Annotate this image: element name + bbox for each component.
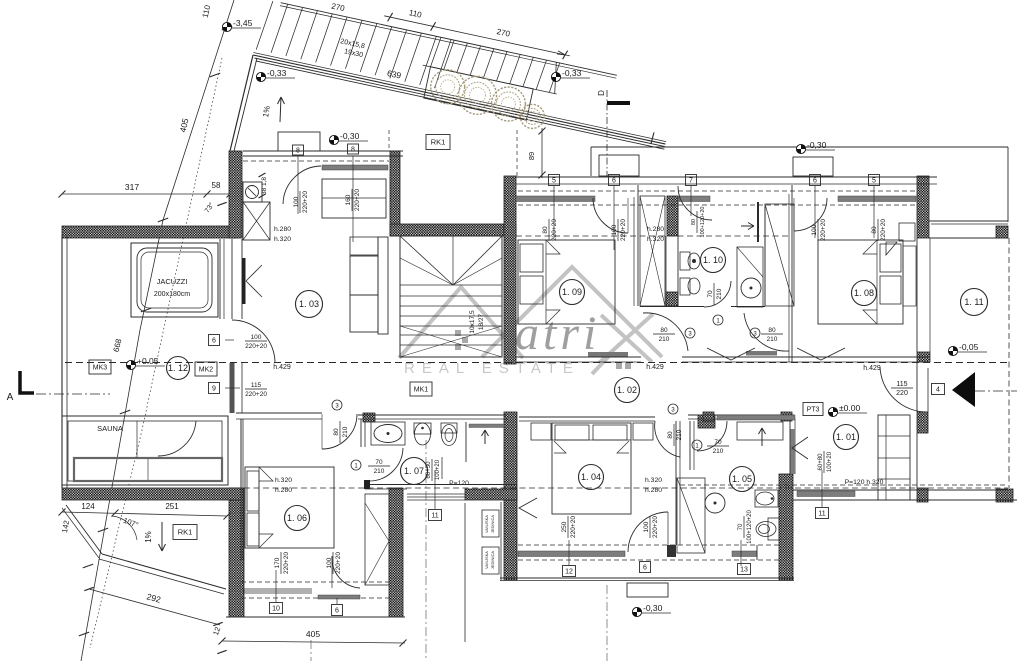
svg-text:100: 100 bbox=[251, 334, 262, 341]
svg-text:18/27: 18/27 bbox=[478, 313, 485, 330]
svg-text:220+20: 220+20 bbox=[652, 516, 659, 538]
svg-text:13: 13 bbox=[740, 567, 748, 574]
svg-text:80: 80 bbox=[691, 219, 697, 225]
svg-text:JEDINICA: JEDINICA bbox=[490, 515, 495, 534]
svg-text:h.320: h.320 bbox=[645, 477, 662, 484]
svg-text:89: 89 bbox=[527, 152, 536, 160]
svg-text:6: 6 bbox=[612, 178, 616, 185]
svg-text:10: 10 bbox=[272, 606, 280, 613]
svg-text:1%: 1% bbox=[144, 531, 153, 543]
svg-text:100: 100 bbox=[643, 521, 650, 532]
svg-text:A: A bbox=[7, 392, 14, 403]
svg-text:100: 100 bbox=[811, 224, 818, 235]
svg-text:220+20: 220+20 bbox=[245, 391, 267, 398]
svg-text:80: 80 bbox=[768, 327, 776, 334]
svg-text:1. 11: 1. 11 bbox=[964, 297, 983, 307]
svg-text:6: 6 bbox=[335, 608, 339, 615]
svg-text:1. 04: 1. 04 bbox=[581, 472, 601, 482]
svg-text:-0,33: -0,33 bbox=[562, 68, 582, 78]
svg-text:80: 80 bbox=[667, 431, 674, 439]
svg-text:317: 317 bbox=[125, 182, 139, 192]
svg-text:210: 210 bbox=[659, 336, 670, 343]
svg-text:6: 6 bbox=[212, 338, 216, 345]
svg-text:220+20: 220+20 bbox=[570, 516, 577, 538]
svg-text:220+20: 220+20 bbox=[880, 219, 887, 241]
svg-text:RK1: RK1 bbox=[431, 138, 446, 147]
svg-text:h.280: h.280 bbox=[275, 487, 292, 494]
svg-text:220+20: 220+20 bbox=[820, 219, 827, 241]
svg-text:RK1: RK1 bbox=[178, 528, 193, 537]
svg-text:-3,45: -3,45 bbox=[233, 18, 253, 28]
svg-text:210: 210 bbox=[713, 448, 724, 455]
svg-text:1. 03: 1. 03 bbox=[299, 299, 319, 309]
svg-text:80: 80 bbox=[660, 327, 668, 334]
svg-text:220+20: 220+20 bbox=[245, 343, 267, 350]
svg-text:1. 12: 1. 12 bbox=[168, 363, 188, 373]
svg-text:210: 210 bbox=[374, 468, 385, 475]
svg-text:-0,30: -0,30 bbox=[807, 140, 827, 150]
svg-text:210: 210 bbox=[342, 426, 349, 437]
svg-text:80: 80 bbox=[871, 226, 878, 234]
svg-text:10x17,5: 10x17,5 bbox=[469, 310, 476, 334]
svg-text:100+120+20: 100+120+20 bbox=[700, 207, 706, 238]
svg-text:±0.00: ±0.00 bbox=[839, 403, 860, 413]
svg-text:SAUNA: SAUNA bbox=[97, 424, 123, 433]
svg-text:80: 80 bbox=[542, 226, 549, 234]
svg-text:60+50: 60+50 bbox=[426, 461, 432, 479]
svg-text:200x180cm: 200x180cm bbox=[154, 291, 190, 298]
svg-text:250: 250 bbox=[561, 521, 568, 532]
svg-text:h.280: h.280 bbox=[647, 226, 664, 233]
svg-text:70: 70 bbox=[375, 459, 383, 466]
svg-text:7: 7 bbox=[689, 178, 693, 185]
svg-text:h.320: h.320 bbox=[275, 477, 292, 484]
svg-text:220+20: 220+20 bbox=[551, 219, 558, 241]
svg-text:115: 115 bbox=[251, 382, 262, 389]
svg-text:h.280: h.280 bbox=[645, 487, 662, 494]
svg-text:VANJSKA: VANJSKA bbox=[484, 515, 489, 533]
svg-text:h.320: h.320 bbox=[647, 236, 664, 243]
svg-text:h.429: h.429 bbox=[646, 364, 664, 371]
svg-text:220+20: 220+20 bbox=[335, 552, 342, 574]
svg-text:MK1: MK1 bbox=[414, 387, 429, 394]
svg-text:JACUZZI: JACUZZI bbox=[157, 277, 188, 286]
svg-text:1. 08: 1. 08 bbox=[854, 288, 874, 298]
svg-text:100+20: 100+20 bbox=[435, 459, 441, 480]
svg-text:210: 210 bbox=[767, 336, 778, 343]
svg-text:1. 09: 1. 09 bbox=[562, 287, 582, 297]
svg-text:h.429: h.429 bbox=[863, 365, 881, 372]
svg-text:8: 8 bbox=[351, 147, 355, 154]
svg-text:115: 115 bbox=[896, 381, 907, 388]
svg-text:5: 5 bbox=[552, 178, 556, 185]
svg-text:1. 10: 1. 10 bbox=[703, 255, 723, 265]
svg-text:220+20: 220+20 bbox=[620, 219, 627, 241]
svg-text:405: 405 bbox=[306, 629, 320, 639]
svg-text:70: 70 bbox=[714, 439, 722, 446]
svg-text:124: 124 bbox=[81, 502, 95, 511]
svg-text:P=120 h.320: P=120 h.320 bbox=[845, 479, 884, 486]
svg-text:h.429: h.429 bbox=[273, 364, 291, 371]
svg-text:D: D bbox=[597, 90, 606, 96]
svg-text:9: 9 bbox=[212, 386, 216, 393]
svg-text:4: 4 bbox=[936, 387, 940, 394]
svg-text:210: 210 bbox=[716, 288, 723, 299]
svg-text:atri: atri bbox=[515, 307, 600, 360]
svg-text:6: 6 bbox=[643, 565, 647, 572]
svg-text:38 1,8: 38 1,8 bbox=[261, 177, 268, 195]
svg-text:220+20: 220+20 bbox=[283, 552, 290, 574]
svg-text:12: 12 bbox=[565, 569, 573, 576]
svg-text:170: 170 bbox=[274, 557, 281, 568]
svg-text:6: 6 bbox=[813, 178, 817, 185]
svg-text:58: 58 bbox=[212, 181, 221, 190]
svg-text:100+20: 100+20 bbox=[827, 451, 833, 472]
svg-text:8: 8 bbox=[296, 148, 300, 155]
svg-text:-0,30: -0,30 bbox=[340, 131, 360, 141]
svg-text:70: 70 bbox=[738, 523, 744, 530]
svg-text:100: 100 bbox=[611, 224, 618, 235]
svg-text:80: 80 bbox=[333, 428, 340, 436]
svg-text:h.320: h.320 bbox=[274, 236, 291, 243]
svg-text:220+20: 220+20 bbox=[354, 189, 361, 211]
svg-text:-0,30: -0,30 bbox=[643, 603, 663, 613]
svg-text:220: 220 bbox=[896, 390, 908, 397]
svg-text:1. 07: 1. 07 bbox=[404, 466, 424, 476]
svg-text:1. 01: 1. 01 bbox=[836, 432, 856, 442]
svg-text:1. 02: 1. 02 bbox=[617, 385, 637, 395]
svg-text:160: 160 bbox=[345, 194, 352, 205]
svg-text:P=120: P=120 bbox=[449, 480, 469, 487]
svg-text:100: 100 bbox=[326, 557, 333, 568]
svg-text:220+20: 220+20 bbox=[302, 191, 309, 213]
svg-text:60+80: 60+80 bbox=[818, 453, 824, 471]
svg-text:70: 70 bbox=[707, 290, 714, 298]
svg-text:-0,05: -0,05 bbox=[959, 342, 979, 352]
svg-text:PT3: PT3 bbox=[807, 407, 820, 414]
svg-text:11: 11 bbox=[431, 513, 438, 520]
svg-text:1. 06: 1. 06 bbox=[287, 513, 307, 523]
svg-text:MK2: MK2 bbox=[199, 367, 214, 374]
svg-text:h.280: h.280 bbox=[274, 226, 291, 233]
svg-text:-0,33: -0,33 bbox=[267, 68, 287, 78]
svg-text:100: 100 bbox=[293, 196, 300, 207]
svg-text:VANJSKA: VANJSKA bbox=[484, 551, 489, 569]
svg-text:100+120+20: 100+120+20 bbox=[747, 509, 753, 543]
svg-text:5: 5 bbox=[872, 178, 876, 185]
svg-text:210: 210 bbox=[676, 429, 683, 440]
svg-text:11: 11 bbox=[818, 511, 825, 518]
svg-text:JEDINICA: JEDINICA bbox=[490, 551, 495, 570]
svg-text:1. 05: 1. 05 bbox=[732, 474, 752, 484]
svg-text:MK3: MK3 bbox=[93, 365, 108, 372]
svg-text:+0.05: +0.05 bbox=[137, 356, 159, 366]
svg-text:251: 251 bbox=[165, 502, 179, 511]
